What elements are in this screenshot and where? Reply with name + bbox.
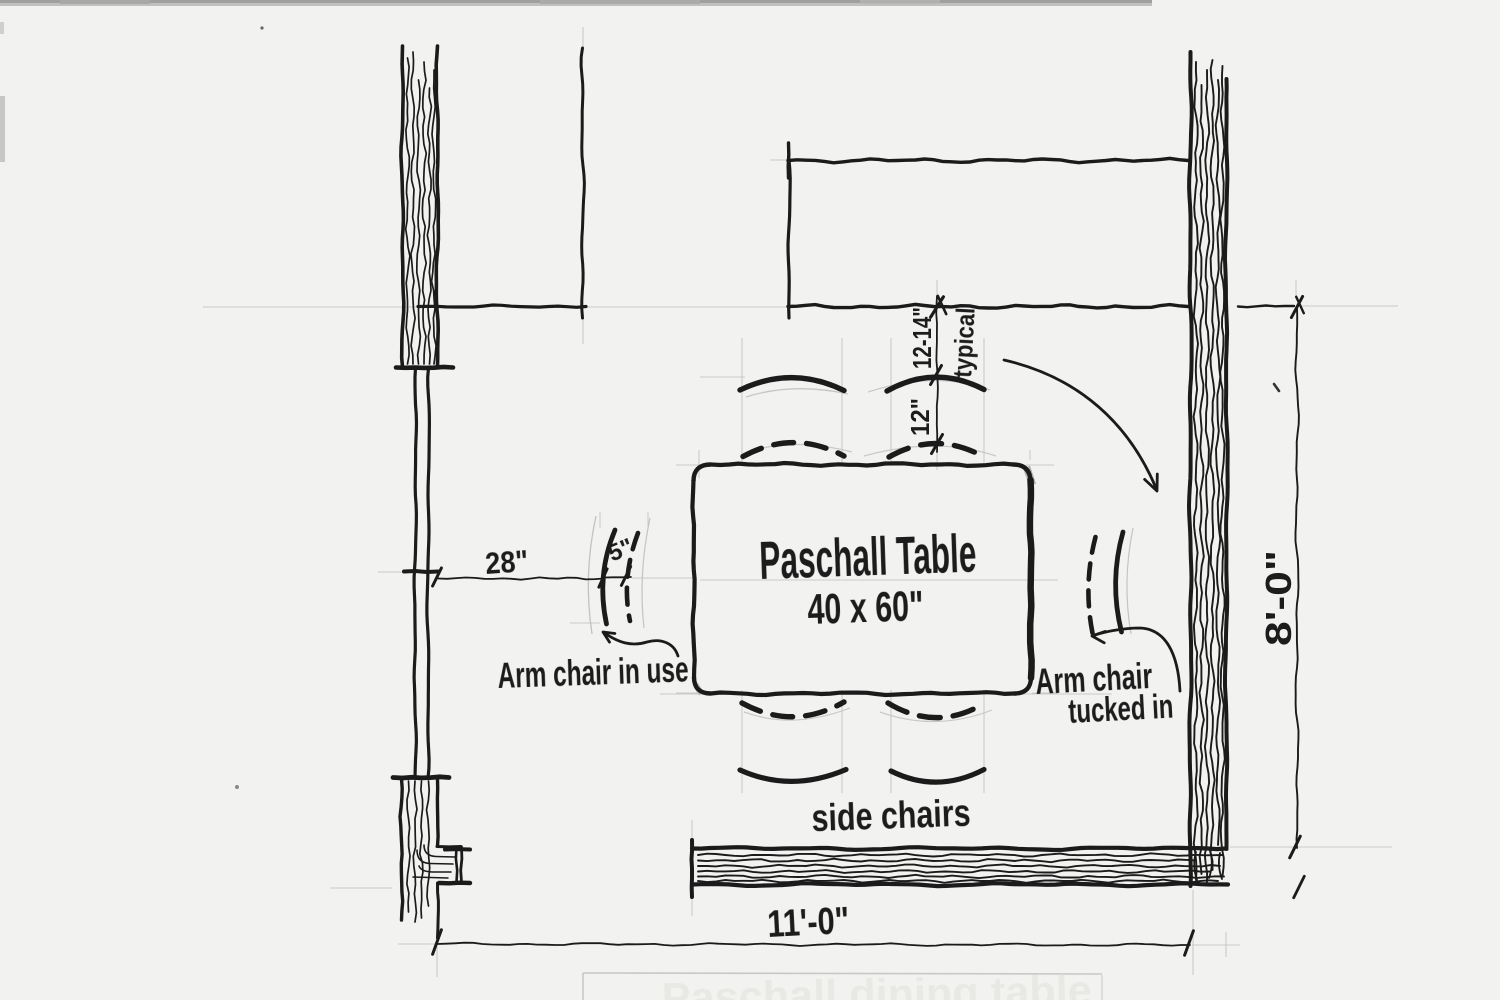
svg-text:typical: typical: [947, 307, 981, 378]
svg-text:12-14": 12-14": [907, 307, 937, 369]
svg-text:side chairs: side chairs: [811, 792, 971, 840]
svg-text:28": 28": [484, 543, 529, 581]
svg-text:11'-0": 11'-0": [766, 900, 850, 946]
svg-text:Paschall Table: Paschall Table: [758, 523, 977, 591]
svg-text:40 x 60": 40 x 60": [807, 582, 925, 634]
svg-text:12": 12": [905, 398, 935, 436]
svg-text:Arm chair in use: Arm chair in use: [497, 648, 689, 696]
svg-text:tucked in: tucked in: [1067, 688, 1174, 731]
svg-text:8'-0": 8'-0": [1258, 550, 1299, 646]
